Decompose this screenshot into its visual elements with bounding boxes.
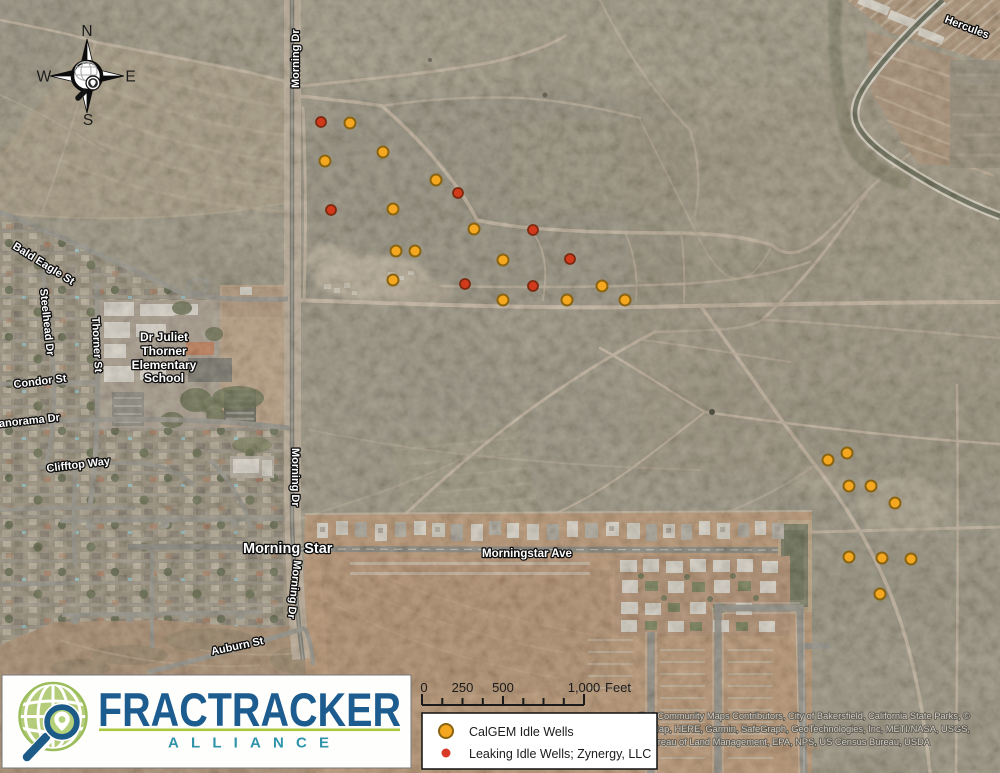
svg-text:Morning Star: Morning Star xyxy=(243,541,333,557)
svg-text:S: S xyxy=(83,112,93,129)
svg-text:Esri Community Maps Contributo: Esri Community Maps Contributors, City o… xyxy=(639,711,970,721)
svg-text:1,000: 1,000 xyxy=(568,680,601,695)
svg-text:250: 250 xyxy=(452,680,474,695)
svg-text:W: W xyxy=(37,69,52,86)
svg-text:ALLIANCE: ALLIANCE xyxy=(168,735,340,752)
svg-text:0: 0 xyxy=(420,680,427,695)
svg-text:E: E xyxy=(125,69,135,86)
svg-text:Feet: Feet xyxy=(605,680,631,695)
svg-text:Morning Dr: Morning Dr xyxy=(289,448,301,507)
svg-text:500: 500 xyxy=(492,680,514,695)
svg-text:Elementary: Elementary xyxy=(132,358,197,372)
svg-text:N: N xyxy=(81,23,92,40)
svg-text:Morningstar Ave: Morningstar Ave xyxy=(482,548,572,560)
svg-text:Morning Dr: Morning Dr xyxy=(290,29,302,88)
svg-text:Dr Juliet: Dr Juliet xyxy=(140,330,188,344)
svg-text:OpenStreetMap, HERE, Garmin, S: OpenStreetMap, HERE, Garmin, SafeGraph, … xyxy=(604,724,970,734)
svg-text:FRACTRACKER: FRACTRACKER xyxy=(98,683,401,736)
svg-text:Leaking Idle Wells; Zynergy, L: Leaking Idle Wells; Zynergy, LLC xyxy=(469,747,651,761)
svg-text:Bureau of Land Management, EPA: Bureau of Land Management, EPA, NPS, US … xyxy=(646,737,930,747)
svg-text:School: School xyxy=(144,371,184,385)
svg-text:Thorner: Thorner xyxy=(141,344,187,358)
svg-text:CalGEM Idle Wells: CalGEM Idle Wells xyxy=(469,725,574,739)
